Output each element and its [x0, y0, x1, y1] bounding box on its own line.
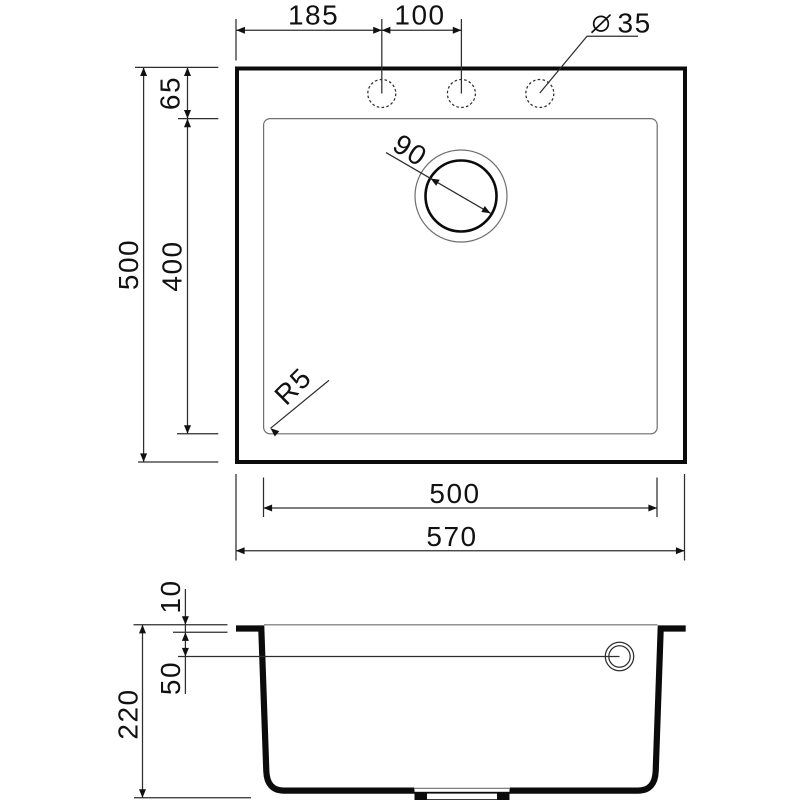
- svg-text:500: 500: [429, 478, 480, 509]
- svg-text:500: 500: [113, 239, 144, 290]
- svg-text:10: 10: [155, 579, 186, 613]
- svg-text:35: 35: [618, 8, 652, 39]
- svg-text:65: 65: [155, 76, 186, 110]
- svg-text:400: 400: [157, 240, 188, 291]
- svg-text:100: 100: [394, 0, 445, 31]
- svg-text:185: 185: [288, 0, 339, 31]
- svg-text:570: 570: [426, 521, 477, 552]
- svg-text:220: 220: [113, 688, 144, 739]
- svg-text:50: 50: [155, 661, 186, 695]
